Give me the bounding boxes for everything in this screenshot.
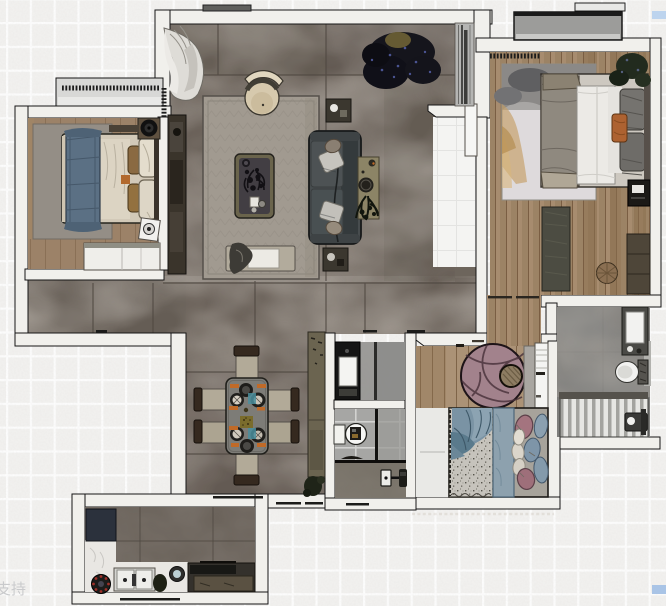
svg-text:支持: 支持	[0, 581, 26, 598]
